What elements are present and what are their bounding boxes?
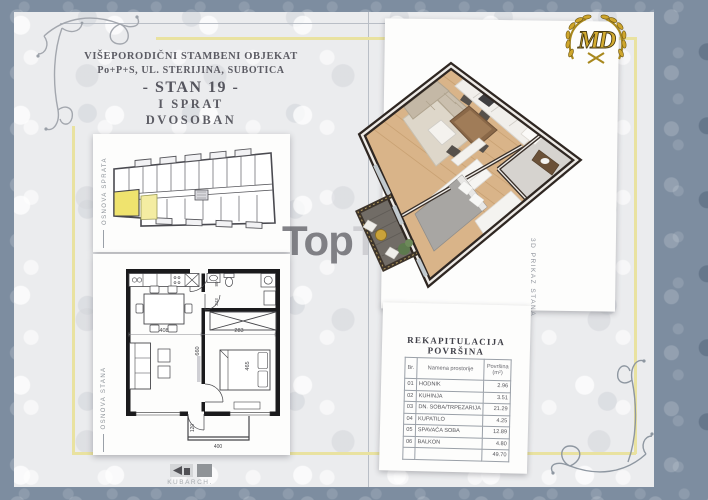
floor-sketch-label: OSNOVA SPRATA	[102, 141, 108, 241]
border-right	[654, 0, 708, 500]
col-name: Namena prostorije	[417, 358, 485, 381]
border-left	[0, 0, 14, 500]
floor-sketch-panel	[93, 134, 290, 252]
kubarch-name: KUBARCH.	[158, 479, 222, 486]
header-address-line: Po+P+S, UL. STERIJINA, SUBOTICA	[14, 65, 368, 76]
area-summary-card: REKAPITULACIJA POVRŠINA Br. Namena prost…	[379, 302, 531, 474]
col-area: Površina(m²)	[484, 359, 511, 381]
border-top	[0, 0, 708, 12]
dim-balcony-width: 400	[214, 444, 223, 450]
highlighted-unit	[114, 190, 139, 217]
dim-apartment-depth: 660	[195, 346, 201, 355]
md-wreath-logo: MD	[551, 12, 641, 66]
dim-bathroom-width: 80	[214, 281, 219, 287]
unit-plan-label: OSNOVA STANA	[101, 348, 107, 448]
header-type-line: DVOSOBAN	[14, 113, 368, 128]
header-floor-line: I SPRAT	[14, 97, 368, 112]
apartment-3d-view	[334, 50, 606, 290]
dim-balcony-depth: 120	[190, 424, 196, 433]
area-table-title: REKAPITULACIJA POVRŠINA	[382, 334, 530, 358]
flourish-ornament-bottom-right	[542, 354, 654, 480]
apartment-floor-plan: 408 283 660 465 80 243 120 400	[112, 256, 290, 454]
header-unit-title: - STAN 19 -	[14, 79, 368, 97]
unit-plan-panel: 408 283 660 465 80 243 120 400	[93, 254, 290, 455]
table-total-row: 49.70	[403, 447, 509, 461]
dim-living-width: 408	[159, 328, 168, 334]
header-building-line: VIŠEPORODIČNI STAMBENI OBJEKAT	[14, 51, 368, 62]
highlighted-unit-extension	[141, 195, 157, 220]
frame-line-gold-left	[72, 126, 75, 454]
total-area: 49.70	[482, 449, 509, 461]
dim-bedroom-depth: 465	[245, 361, 251, 370]
kubarch-logo: KUBARCH.	[158, 462, 222, 488]
building-plan-sketch	[101, 140, 281, 240]
kubarch-icon-left	[170, 464, 193, 477]
floor-sketch-label-dash	[103, 230, 104, 248]
brochure-page: MD VIŠEPORODIČNI STAMBENI OBJEKAT Po+P+S…	[0, 0, 708, 500]
unit-plan-label-dash	[103, 434, 104, 452]
md-monogram: MD	[577, 27, 616, 54]
dim-bedroom-width: 283	[234, 328, 243, 334]
border-bottom	[0, 487, 708, 500]
area-table: Br. Namena prostorije Površina(m²) 01HOD…	[402, 357, 512, 462]
col-num: Br.	[405, 357, 417, 378]
dim-bathroom-depth: 243	[214, 298, 219, 306]
area-table-header-row: Br. Namena prostorije Površina(m²)	[405, 357, 512, 381]
kubarch-icon-right	[197, 464, 212, 477]
